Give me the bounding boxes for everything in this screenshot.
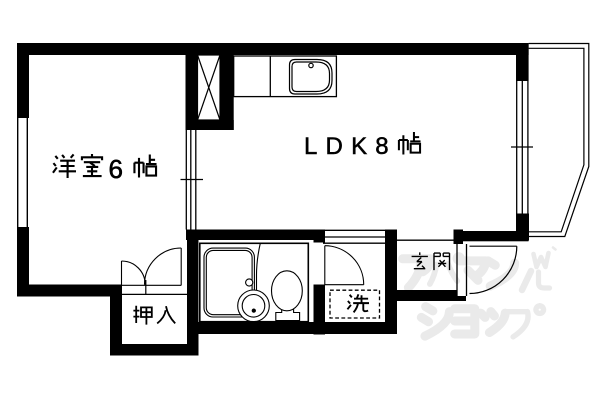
svg-text:LDK8: LDK8 [304, 133, 397, 160]
svg-text:6: 6 [109, 154, 123, 184]
